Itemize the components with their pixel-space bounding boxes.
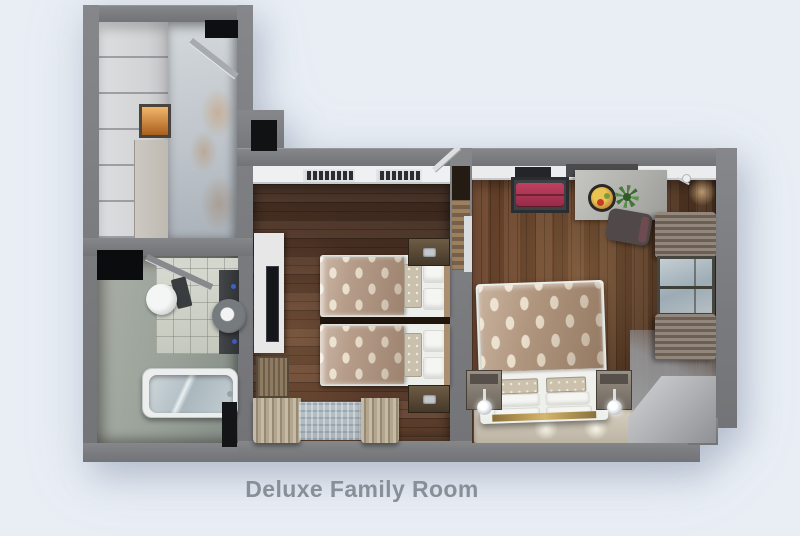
nightstand-top — [470, 374, 498, 384]
nightstand-top — [600, 374, 628, 384]
fruit — [604, 193, 610, 199]
nightstand — [408, 238, 450, 266]
accent-pillow — [404, 333, 422, 377]
bed-gap — [320, 317, 450, 324]
luggage-rack — [511, 177, 569, 213]
wall-bedrooms-top — [237, 148, 737, 166]
wardrobe-side — [134, 140, 168, 238]
floorplan-canvas: Deluxe Family Room — [0, 0, 800, 536]
bedside-lamp — [607, 400, 622, 415]
tv-screen — [266, 266, 279, 342]
entrance-recess — [205, 20, 238, 38]
window — [657, 256, 715, 316]
ceiling-vent — [303, 169, 355, 182]
curtain-drape — [361, 398, 399, 443]
sheer-curtain — [299, 402, 363, 440]
duvet — [320, 257, 404, 315]
twin-bed-b — [320, 324, 450, 386]
pillow — [423, 330, 445, 352]
suitcase — [516, 183, 564, 207]
potted-plant — [615, 185, 639, 208]
plan-title: Deluxe Family Room — [132, 472, 592, 506]
window-mullion — [694, 259, 696, 313]
window-mullion — [660, 286, 712, 289]
wall-mirror — [464, 216, 472, 272]
bathroom-recess — [97, 250, 143, 280]
sink-basin — [212, 299, 246, 333]
connecting-door-opening — [452, 166, 470, 200]
headboard — [444, 324, 450, 386]
floor-plan — [0, 0, 800, 536]
plant-center — [623, 193, 631, 201]
ceiling-vent — [376, 169, 422, 182]
nightstand-handle — [423, 395, 436, 404]
nightstand — [408, 385, 450, 413]
hall-bedroom-door-recess — [251, 120, 277, 151]
pillow — [423, 288, 445, 310]
wall-right — [716, 148, 737, 428]
accent-pillow — [404, 264, 422, 308]
pillow — [495, 393, 539, 408]
duvet — [320, 326, 404, 384]
accent-pillow — [546, 376, 586, 392]
curtain-drape — [253, 398, 301, 443]
duvet — [479, 282, 604, 374]
wall-bottom — [237, 441, 700, 462]
accent-pillow — [498, 378, 538, 394]
fruit — [597, 199, 604, 206]
toiletry-item — [232, 339, 237, 344]
bedside-lamp — [477, 400, 492, 415]
sconce-light-glow — [688, 178, 716, 206]
nightstand-handle — [423, 248, 436, 257]
chair-cushion — [638, 216, 650, 243]
wall-entry-right — [237, 5, 253, 445]
fruit-bowl — [591, 187, 613, 209]
curtain-drape — [655, 314, 716, 360]
bathtub-faucet — [227, 391, 233, 397]
fruit-plate — [588, 184, 616, 212]
wall-sconce — [682, 174, 691, 183]
luggage-bench — [256, 356, 289, 398]
bathtub-inner — [149, 375, 233, 413]
lit-shelf-niche — [139, 104, 171, 138]
curtain-drape — [655, 212, 716, 258]
pillow — [545, 391, 589, 406]
toiletry-item — [231, 284, 236, 289]
bottom-wall-recess — [222, 402, 237, 447]
pillow — [423, 357, 445, 379]
